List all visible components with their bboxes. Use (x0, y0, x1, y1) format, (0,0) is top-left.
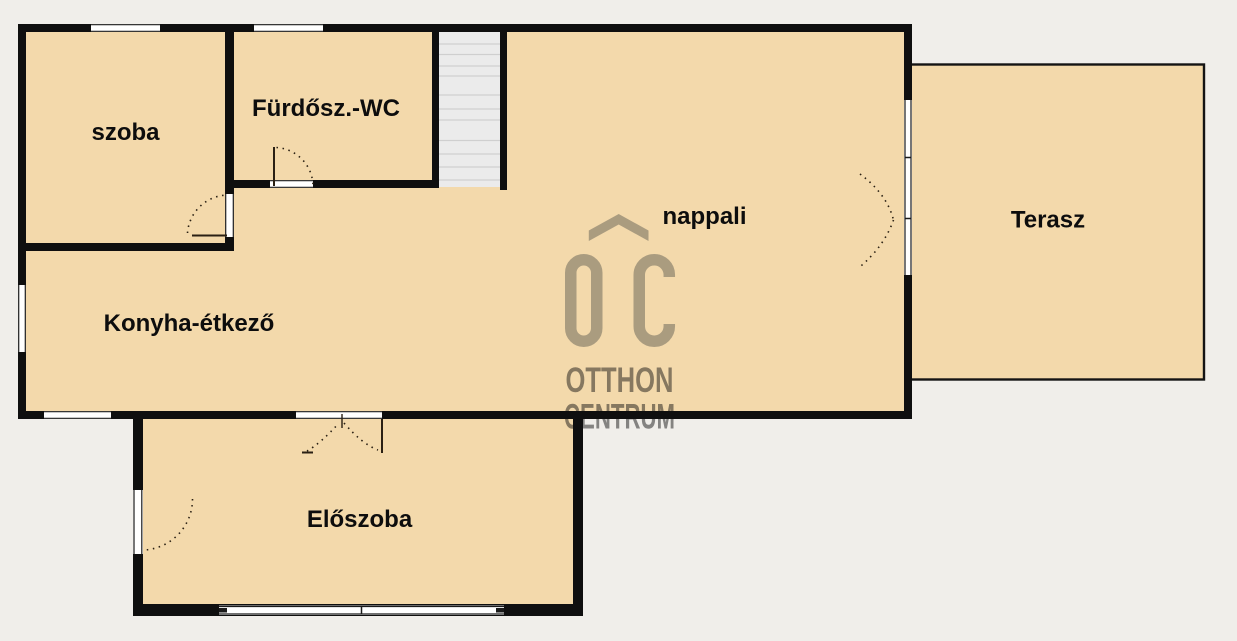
svg-text:Előszoba: Előszoba (307, 506, 413, 533)
svg-text:Konyha-étkező: Konyha-étkező (104, 310, 275, 337)
svg-text:OTTHON: OTTHON (566, 361, 674, 400)
svg-text:Fürdősz.-WC: Fürdősz.-WC (252, 95, 400, 122)
svg-text:Terasz: Terasz (1011, 207, 1085, 234)
svg-text:nappali: nappali (662, 203, 746, 230)
svg-text:szoba: szoba (91, 119, 160, 146)
